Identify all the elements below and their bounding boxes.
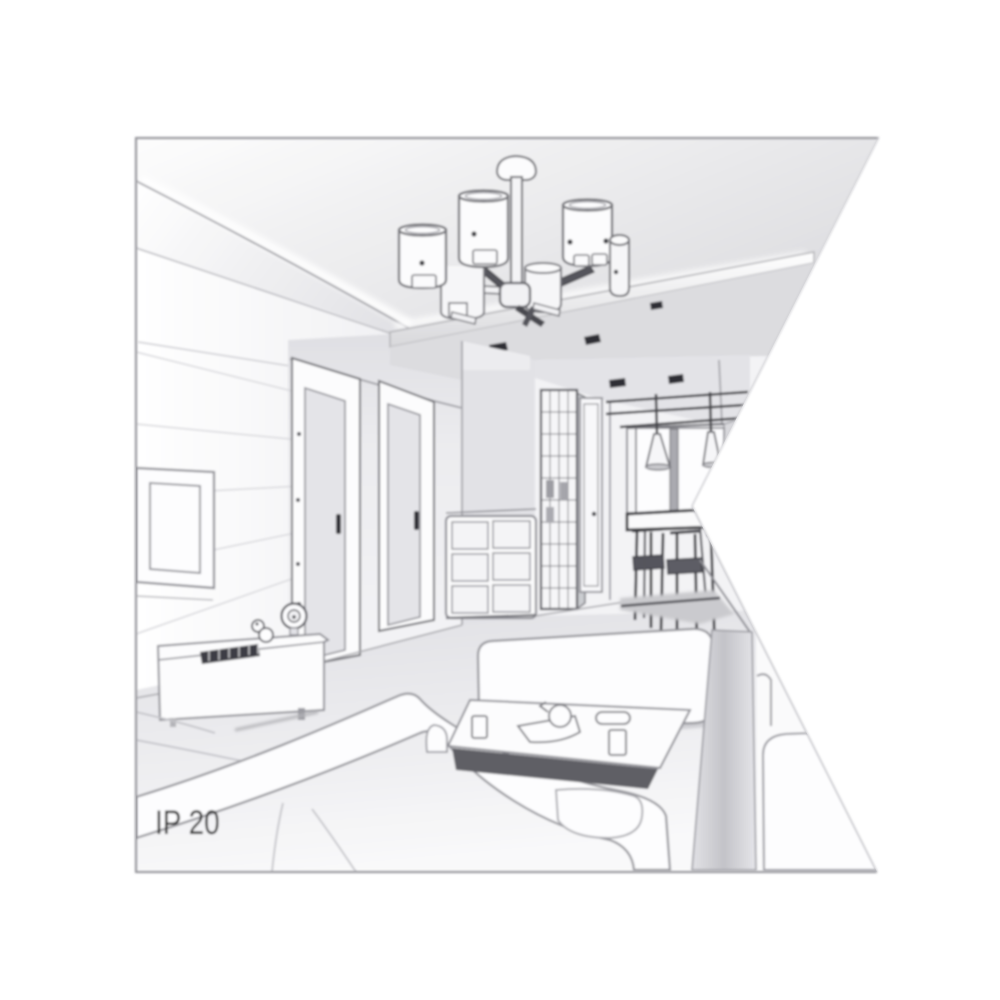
svg-text:IP 20: IP 20 bbox=[155, 803, 220, 841]
